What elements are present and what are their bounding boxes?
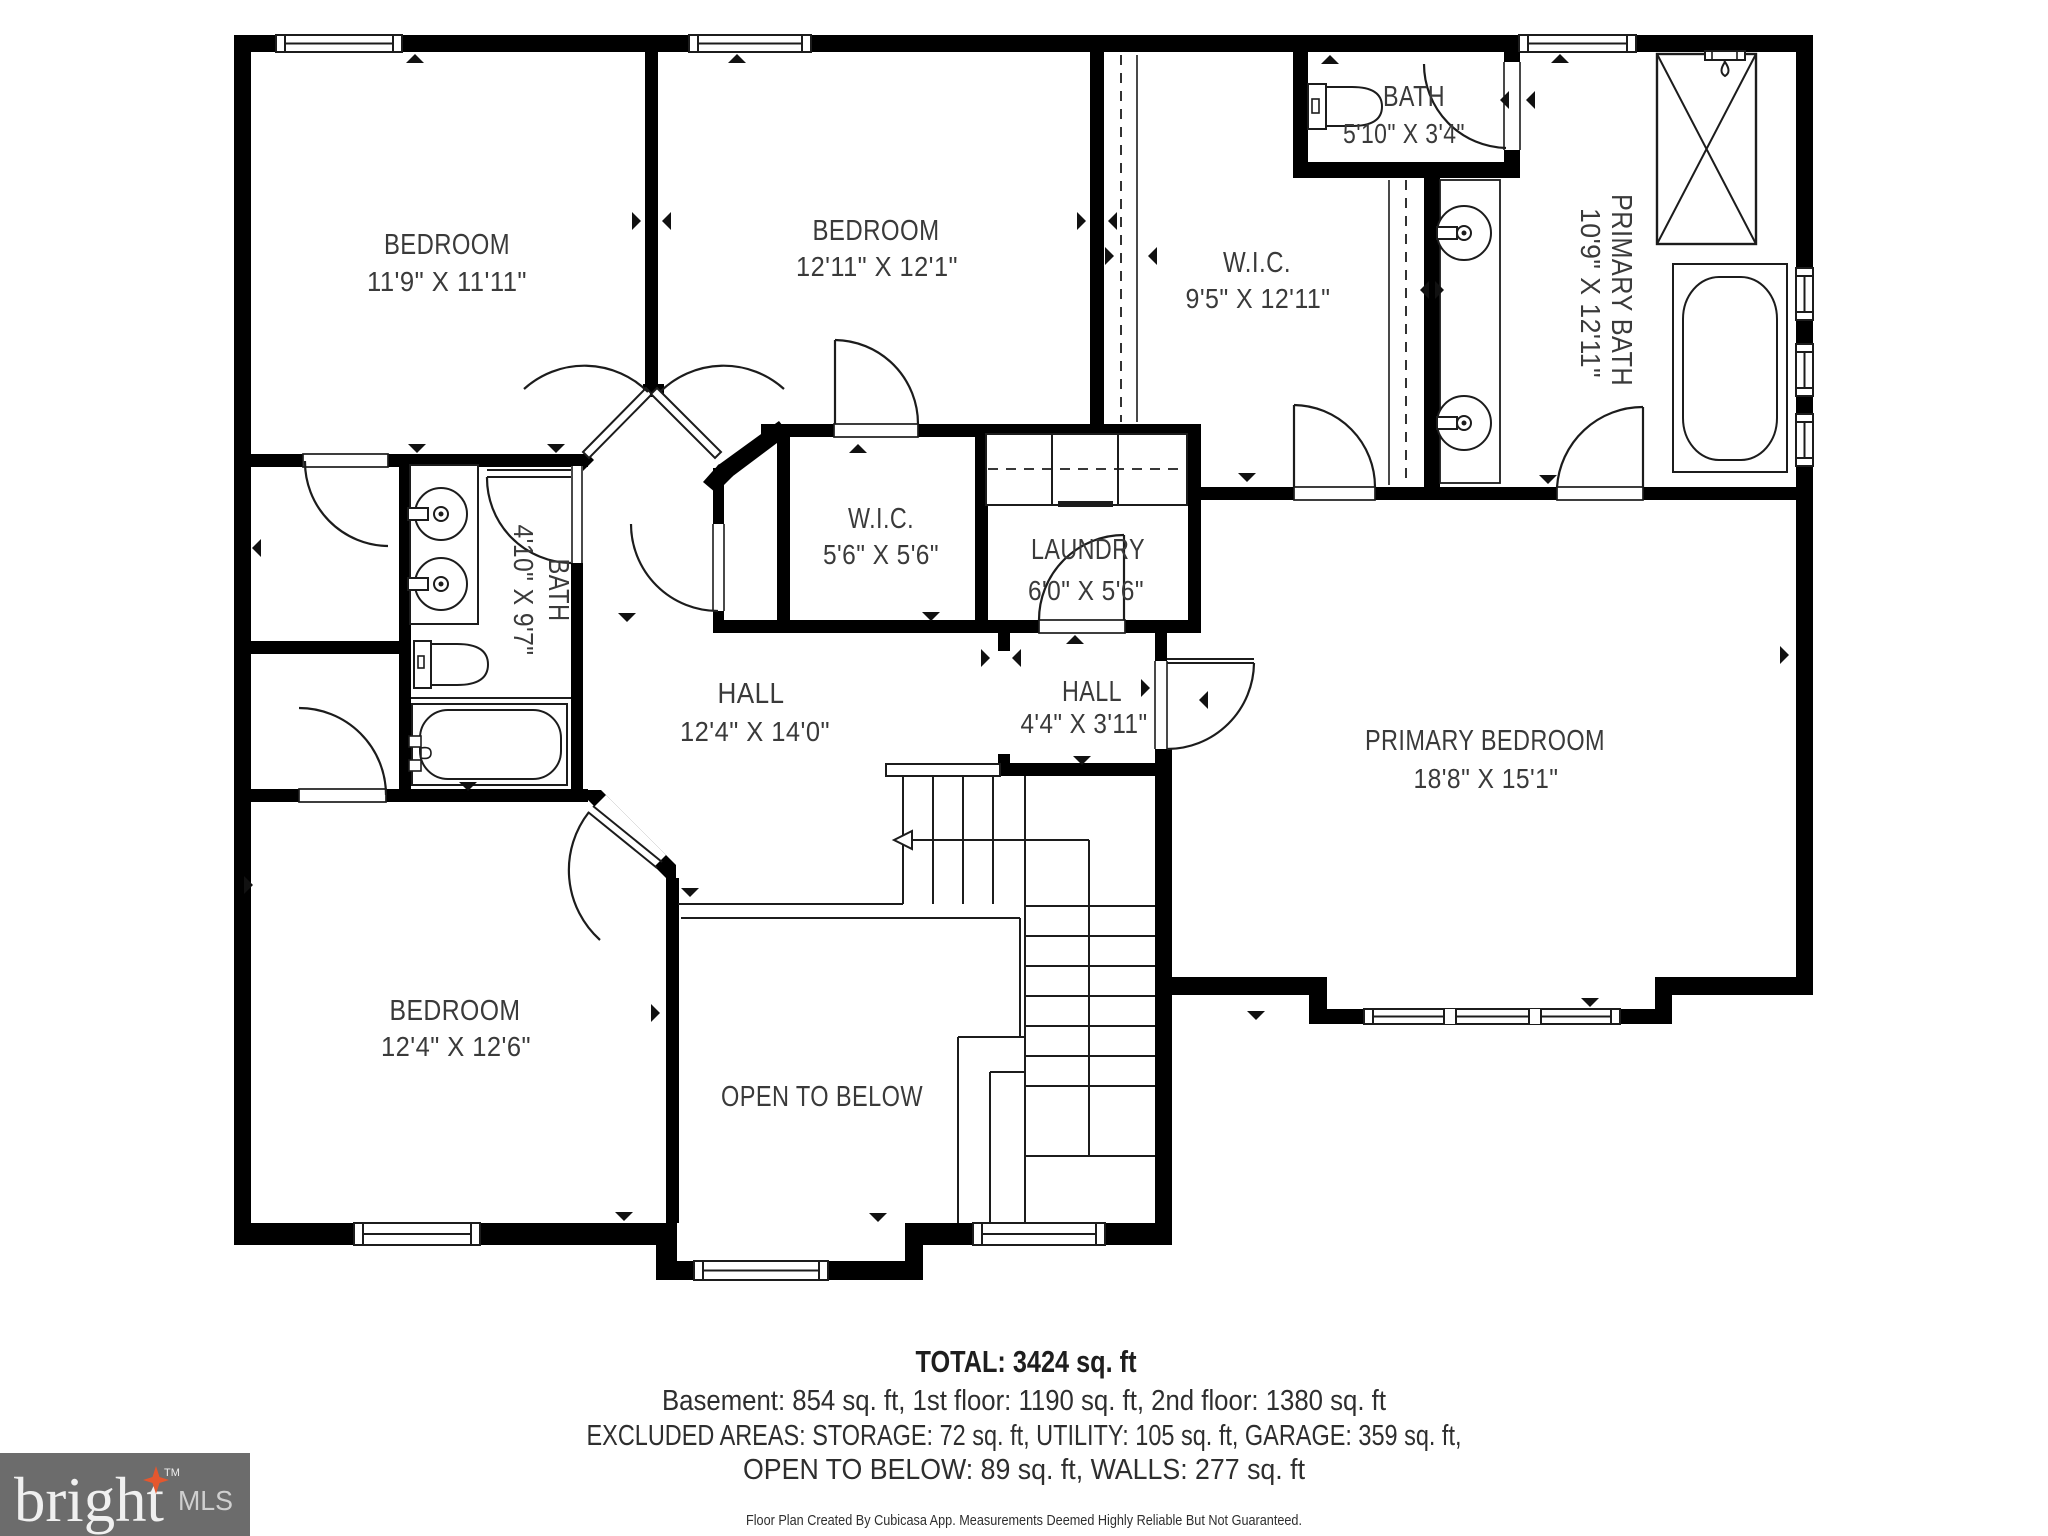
svg-text:W.I.C.: W.I.C.	[1223, 247, 1291, 279]
svg-text:OPEN TO BELOW: 89 sq. ft, WALL: OPEN TO BELOW: 89 sq. ft, WALLS: 277 sq.…	[743, 1454, 1305, 1486]
svg-text:5'6" X 5'6": 5'6" X 5'6"	[823, 539, 939, 570]
svg-text:18'8" X 15'1": 18'8" X 15'1"	[1414, 763, 1559, 794]
svg-text:LAUNDRY: LAUNDRY	[1031, 534, 1145, 566]
svg-text:4'4" X 3'11": 4'4" X 3'11"	[1021, 708, 1148, 739]
svg-text:BEDROOM: BEDROOM	[813, 215, 940, 247]
svg-text:9'5" X 12'11": 9'5" X 12'11"	[1186, 283, 1331, 314]
svg-text:12'11" X 12'1": 12'11" X 12'1"	[796, 251, 958, 282]
svg-text:bright: bright	[14, 1464, 164, 1535]
svg-text:HALL: HALL	[1062, 676, 1122, 708]
svg-text:EXCLUDED AREAS: STORAGE: 72 sq: EXCLUDED AREAS: STORAGE: 72 sq. ft, UTIL…	[587, 1420, 1462, 1452]
svg-text:BEDROOM: BEDROOM	[390, 995, 521, 1027]
svg-text:HALL: HALL	[718, 678, 785, 710]
svg-text:12'4" X 12'6": 12'4" X 12'6"	[381, 1031, 531, 1062]
svg-text:BATH: BATH	[1383, 81, 1445, 113]
svg-text:5'10" X 3'4": 5'10" X 3'4"	[1343, 118, 1465, 149]
svg-text:10'9" X 12'11": 10'9" X 12'11"	[1575, 208, 1606, 378]
svg-text:12'4" X 14'0": 12'4" X 14'0"	[680, 716, 830, 747]
svg-text:11'9" X 11'11": 11'9" X 11'11"	[367, 266, 527, 297]
svg-text:Basement: 854 sq. ft, 1st floo: Basement: 854 sq. ft, 1st floor: 1190 sq…	[662, 1385, 1386, 1417]
svg-text:MLS: MLS	[178, 1485, 233, 1516]
svg-text:6'0" X 5'6": 6'0" X 5'6"	[1028, 575, 1144, 606]
svg-text:TM: TM	[164, 1467, 180, 1479]
svg-text:TOTAL: 3424 sq. ft: TOTAL: 3424 sq. ft	[916, 1344, 1137, 1379]
svg-text:PRIMARY BATH: PRIMARY BATH	[1605, 194, 1637, 386]
svg-text:BEDROOM: BEDROOM	[384, 229, 510, 261]
svg-text:W.I.C.: W.I.C.	[848, 503, 914, 535]
svg-text:Floor Plan Created By Cubicasa: Floor Plan Created By Cubicasa App. Meas…	[746, 1512, 1302, 1529]
svg-text:OPEN TO BELOW: OPEN TO BELOW	[721, 1081, 923, 1113]
svg-text:BATH: BATH	[542, 559, 574, 622]
svg-text:PRIMARY BEDROOM: PRIMARY BEDROOM	[1365, 725, 1605, 757]
svg-text:4'10" X 9'7": 4'10" X 9'7"	[508, 525, 539, 656]
